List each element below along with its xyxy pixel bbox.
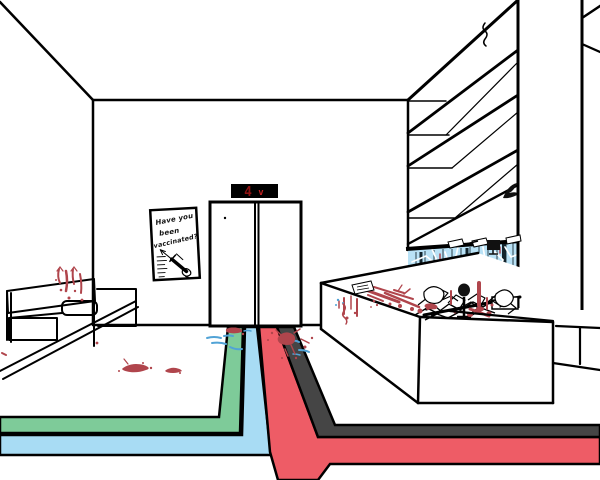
pillar <box>518 0 582 310</box>
counter-right-section <box>418 317 553 403</box>
small-monitor-icon <box>487 240 500 250</box>
door-smudge <box>224 217 226 219</box>
scene-canvas: 4 v Have you been vaccinated? <box>0 0 600 480</box>
desk-lamp-head <box>458 284 470 297</box>
crumpled-paper <box>424 287 444 304</box>
illustrated-lobby-scene: 4 v Have you been vaccinated? <box>0 0 600 480</box>
vaccination-poster[interactable]: Have you been vaccinated? <box>150 208 200 280</box>
elevator: 4 v <box>210 184 301 326</box>
pillar-face <box>518 0 582 310</box>
elevator-floor-number: 4 <box>244 185 252 200</box>
elevator-display <box>231 184 278 198</box>
elevator-direction-indicator: v <box>258 188 264 198</box>
crumpled-paper <box>495 290 513 307</box>
